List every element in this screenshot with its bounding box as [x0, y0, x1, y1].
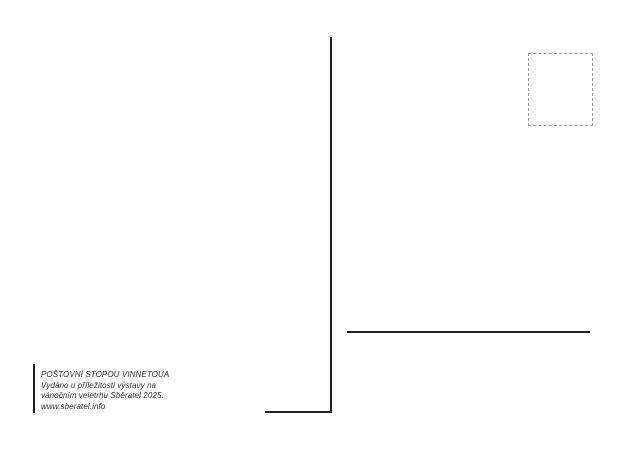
imprint-vertical-bar	[33, 364, 35, 413]
imprint-website: www.sberatel.info	[41, 402, 169, 413]
imprint-title: POŠTOVNÍ STOPOU VINNETOUA	[41, 370, 169, 381]
imprint-block: POŠTOVNÍ STOPOU VINNETOUA Vydáno u příle…	[33, 364, 169, 413]
address-line	[347, 331, 590, 333]
imprint-text: POŠTOVNÍ STOPOU VINNETOUA Vydáno u příle…	[41, 364, 169, 413]
imprint-line-event: vánočním veletrhu Sběratel 2025.	[41, 391, 169, 402]
stamp-placeholder-box	[528, 53, 593, 126]
center-divider-line	[265, 37, 332, 413]
imprint-line-issued: Vydáno u příležitosti výstavy na	[41, 381, 169, 392]
postcard-back: POŠTOVNÍ STOPOU VINNETOUA Vydáno u příle…	[0, 0, 644, 455]
